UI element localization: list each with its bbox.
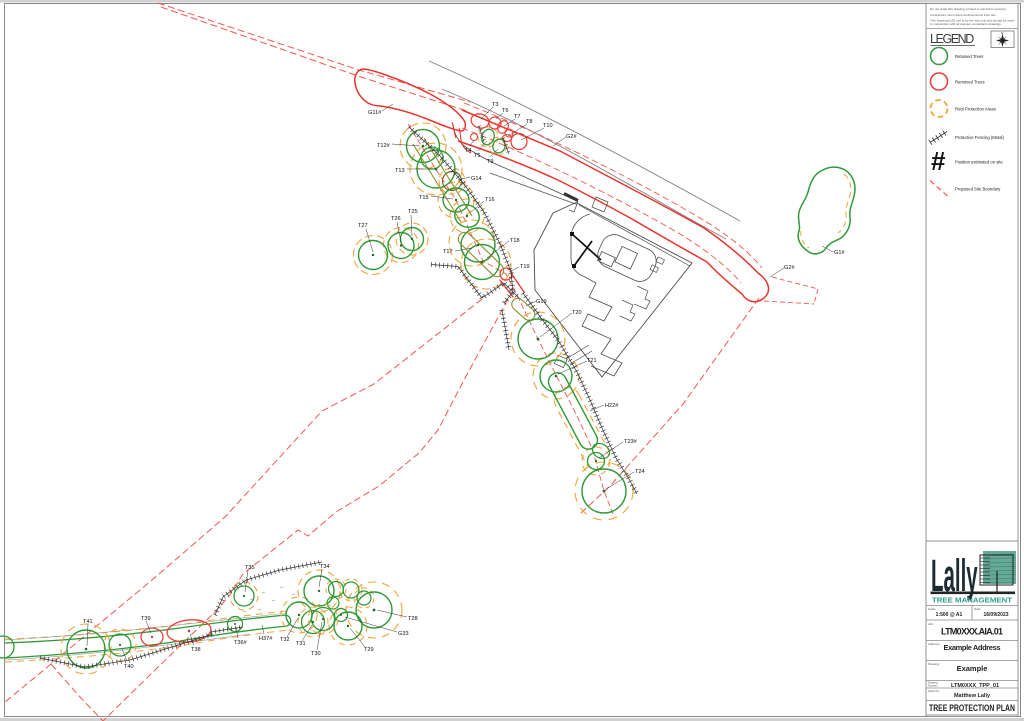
svg-text:T36#: T36#: [234, 640, 248, 646]
svg-text:T20: T20: [572, 310, 582, 316]
svg-text:1:500 @ A1: 1:500 @ A1: [936, 612, 963, 618]
svg-text:T12#: T12#: [377, 143, 391, 149]
svg-text:G14: G14: [471, 176, 482, 182]
svg-text:Example Address: Example Address: [944, 643, 1001, 652]
svg-text:in conjunction with all releva: in conjunction with all relevant consult…: [930, 22, 1002, 26]
svg-text:T10: T10: [543, 123, 553, 129]
svg-text:T30: T30: [311, 651, 321, 657]
svg-text:T23#: T23#: [624, 439, 638, 445]
svg-text:Position estimated on site: Position estimated on site: [955, 159, 1003, 164]
svg-text:16/09/2023: 16/09/2023: [983, 612, 1008, 618]
svg-text:T35: T35: [245, 565, 255, 571]
svg-text:Do not scale this drawing; pri: Do not scale this drawing; printed or el…: [930, 7, 1007, 11]
svg-text:T9: T9: [487, 159, 494, 165]
svg-text:H22#: H22#: [605, 403, 619, 409]
svg-text:T38: T38: [191, 647, 201, 653]
svg-text:T31: T31: [296, 641, 306, 647]
svg-text:T21: T21: [587, 358, 597, 364]
svg-text:T8: T8: [526, 119, 533, 125]
svg-text:T28: T28: [408, 616, 418, 622]
svg-text:Protective Fencing (Metal): Protective Fencing (Metal): [955, 135, 1004, 140]
svg-text:#: #: [931, 146, 946, 176]
svg-text:T24: T24: [635, 469, 645, 475]
svg-text:T13: T13: [395, 168, 405, 174]
svg-text:T17: T17: [443, 249, 453, 255]
svg-text:Date:: Date:: [974, 607, 981, 611]
svg-text:Job:: Job:: [928, 622, 934, 626]
svg-text:T40: T40: [124, 664, 134, 670]
svg-text:Proposed Site Boundary: Proposed Site Boundary: [955, 186, 1001, 191]
svg-text:T25: T25: [408, 209, 418, 215]
svg-text:Scale:: Scale:: [928, 607, 937, 611]
svg-text:Address:: Address:: [928, 642, 940, 646]
svg-text:LTM0XXX_TPP_01: LTM0XXX_TPP_01: [951, 683, 999, 689]
svg-text:G1#: G1#: [834, 250, 845, 256]
svg-text:T7: T7: [514, 114, 521, 120]
svg-text:T26: T26: [391, 216, 401, 222]
svg-text:Drawn by:: Drawn by:: [928, 689, 940, 693]
svg-text:T39: T39: [141, 616, 151, 622]
svg-text:H37#: H37#: [259, 636, 273, 642]
svg-text:TREE MANAGEMENT: TREE MANAGEMENT: [932, 596, 1012, 605]
svg-text:G33: G33: [398, 631, 409, 637]
svg-text:LTM0XXX.AIA.01: LTM0XXX.AIA.01: [941, 627, 1003, 637]
svg-text:T34: T34: [320, 564, 330, 570]
svg-text:T18: T18: [510, 238, 520, 244]
svg-text:T4: T4: [465, 148, 472, 154]
svg-text:T5: T5: [474, 153, 481, 159]
svg-text:G19: G19: [536, 299, 547, 305]
svg-text:G11#: G11#: [368, 110, 382, 116]
svg-text:G2#: G2#: [566, 134, 577, 140]
svg-text:TREE PROTECTION PLAN: TREE PROTECTION PLAN: [929, 703, 1015, 713]
svg-text:Retained Trees: Retained Trees: [955, 54, 983, 59]
svg-text:T41: T41: [83, 619, 93, 625]
svg-text:T29: T29: [364, 647, 374, 653]
svg-text:Removed Trees: Removed Trees: [955, 79, 985, 84]
svg-text:T16: T16: [485, 197, 495, 203]
svg-text:T6: T6: [502, 108, 509, 114]
svg-text:Matthew Lally: Matthew Lally: [954, 693, 991, 699]
svg-text:T19: T19: [520, 264, 530, 270]
svg-text:Contractors must check all dim: Contractors must check all dimensions fr…: [930, 13, 997, 17]
svg-text:G2#: G2#: [784, 265, 795, 271]
svg-text:Number:: Number:: [928, 684, 938, 688]
svg-text:T32: T32: [280, 637, 290, 643]
svg-text:Example: Example: [957, 664, 988, 673]
svg-text:Root Protection Areas: Root Protection Areas: [955, 106, 996, 111]
svg-text:T15: T15: [419, 195, 429, 201]
svg-text:T3: T3: [492, 102, 499, 108]
svg-text:T27: T27: [358, 223, 368, 229]
svg-text:Drawing:: Drawing:: [928, 662, 940, 666]
svg-text:LEGEND: LEGEND: [930, 32, 975, 46]
